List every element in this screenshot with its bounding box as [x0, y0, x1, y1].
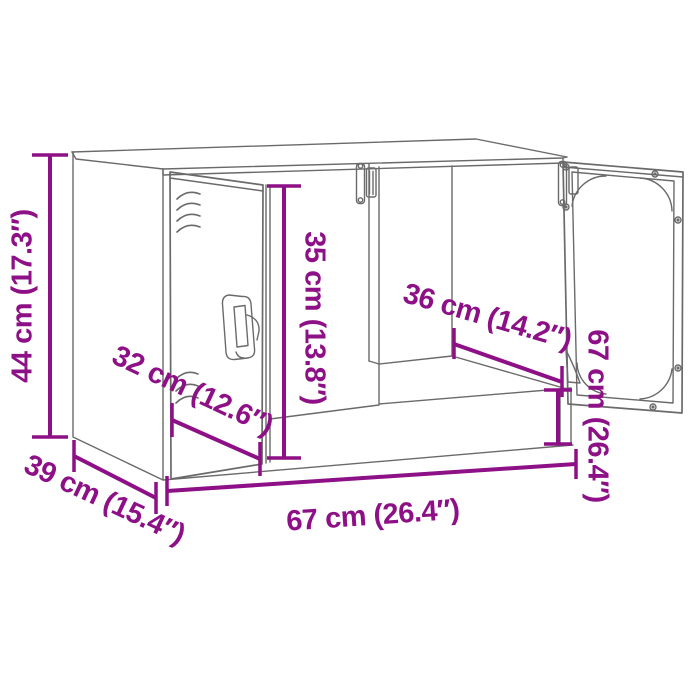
- label-door-depth: 32 cm (12.6″): [107, 340, 278, 442]
- cabinet-top-panel: [72, 139, 567, 175]
- left-door-top-thickness: [170, 178, 263, 191]
- label-overall-depth: 39 cm (15.4″): [19, 449, 190, 551]
- right-door-open: [563, 162, 683, 413]
- label-overall-width: 67 cm (26.4″): [285, 494, 460, 538]
- dimension-labels: 44 cm (17.3″) 35 cm (13.8″) 32 cm (12.6″…: [7, 209, 614, 551]
- bottom-front-edge: [163, 445, 573, 480]
- top-left-edge: [72, 152, 163, 169]
- right-door-outline: [563, 162, 683, 413]
- top-back-edge: [72, 139, 567, 157]
- cabinet-dimension-figure: 44 cm (17.3″) 35 cm (13.8″) 32 cm (12.6″…: [0, 0, 700, 700]
- product-dimension-diagram: 44 cm (17.3″) 35 cm (13.8″) 32 cm (12.6″…: [0, 0, 700, 700]
- screw-icons: [563, 164, 681, 410]
- vent-slats-upper-icon: [177, 192, 200, 232]
- latch-handle-icon: [222, 295, 259, 360]
- right-door-top-thickness: [563, 167, 683, 177]
- label-inner-height: 35 cm (13.8″): [298, 231, 330, 404]
- dimension-67cm-bottom: [167, 449, 576, 506]
- label-overall-height: 44 cm (17.3″): [7, 209, 39, 382]
- left-side-panel: [73, 152, 163, 480]
- label-inner-depth: 36 cm (14.2″): [400, 277, 576, 356]
- label-width-right: 67 cm (26.4″): [581, 329, 613, 502]
